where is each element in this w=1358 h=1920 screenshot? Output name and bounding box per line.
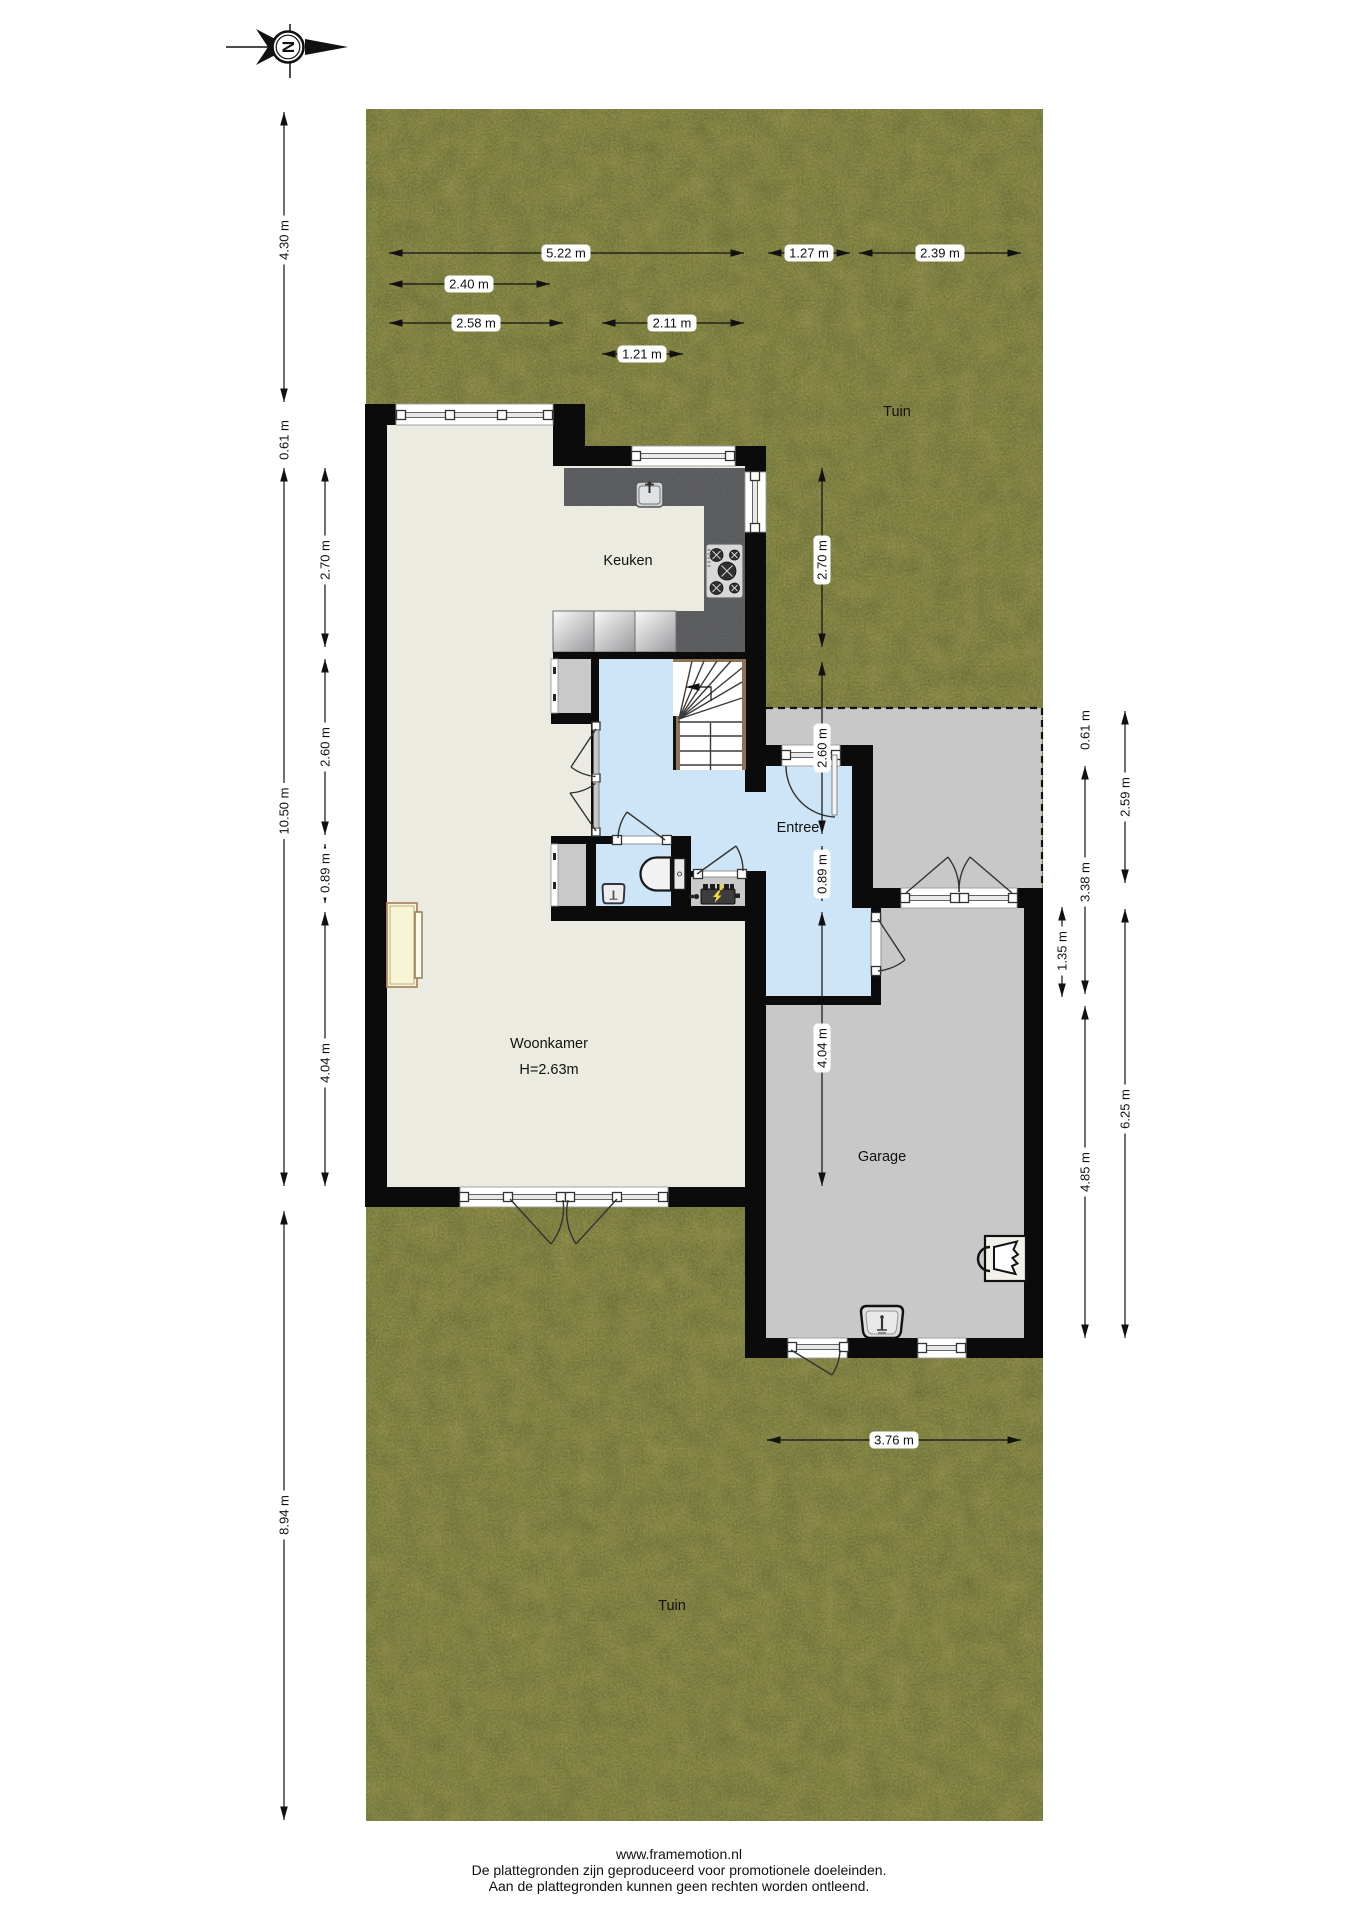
svg-text:4.04 m: 4.04 m	[318, 1043, 333, 1083]
svg-text:10.50 m: 10.50 m	[277, 788, 292, 835]
svg-text:Tuin: Tuin	[658, 1598, 686, 1614]
svg-text:1.35 m: 1.35 m	[1055, 931, 1070, 971]
svg-text:3.76 m: 3.76 m	[874, 1433, 914, 1448]
svg-text:Garage: Garage	[858, 1149, 906, 1165]
svg-text:2.11 m: 2.11 m	[653, 316, 692, 331]
svg-text:6.25 m: 6.25 m	[1118, 1089, 1133, 1129]
svg-text:0.89 m: 0.89 m	[318, 853, 333, 893]
svg-text:H=2.63m: H=2.63m	[519, 1062, 578, 1078]
svg-text:0.61 m: 0.61 m	[1078, 710, 1093, 750]
svg-text:1.21 m: 1.21 m	[622, 347, 662, 362]
svg-text:Keuken: Keuken	[603, 553, 652, 569]
svg-text:2.40 m: 2.40 m	[449, 277, 489, 292]
svg-text:8.94 m: 8.94 m	[277, 1495, 292, 1535]
svg-text:2.70 m: 2.70 m	[815, 540, 830, 580]
svg-text:N: N	[279, 41, 298, 53]
svg-text:De plattegronden zijn geproduc: De plattegronden zijn geproduceerd voor …	[472, 1862, 887, 1878]
svg-text:4.04 m: 4.04 m	[815, 1028, 830, 1068]
svg-text:4.85 m: 4.85 m	[1078, 1152, 1093, 1192]
svg-text:2.60 m: 2.60 m	[318, 727, 333, 767]
svg-text:5.22 m: 5.22 m	[546, 246, 586, 261]
svg-text:2.70 m: 2.70 m	[318, 540, 333, 580]
svg-text:2.39 m: 2.39 m	[920, 246, 960, 261]
svg-text:4.30 m: 4.30 m	[277, 220, 292, 260]
svg-text:1.27 m: 1.27 m	[789, 246, 829, 261]
svg-text:3.38 m: 3.38 m	[1078, 862, 1093, 902]
svg-text:Entree: Entree	[777, 820, 820, 836]
svg-text:2.60 m: 2.60 m	[815, 728, 830, 768]
svg-text:Woonkamer: Woonkamer	[510, 1036, 588, 1052]
svg-text:0.89 m: 0.89 m	[815, 854, 830, 894]
svg-text:Aan de plattegronden kunnen ge: Aan de plattegronden kunnen geen rechten…	[489, 1878, 870, 1894]
svg-text:www.framemotion.nl: www.framemotion.nl	[615, 1846, 742, 1862]
svg-text:0.61 m: 0.61 m	[277, 420, 292, 460]
svg-text:2.59 m: 2.59 m	[1118, 777, 1133, 817]
svg-text:2.58 m: 2.58 m	[456, 316, 496, 331]
svg-text:Tuin: Tuin	[883, 404, 911, 420]
